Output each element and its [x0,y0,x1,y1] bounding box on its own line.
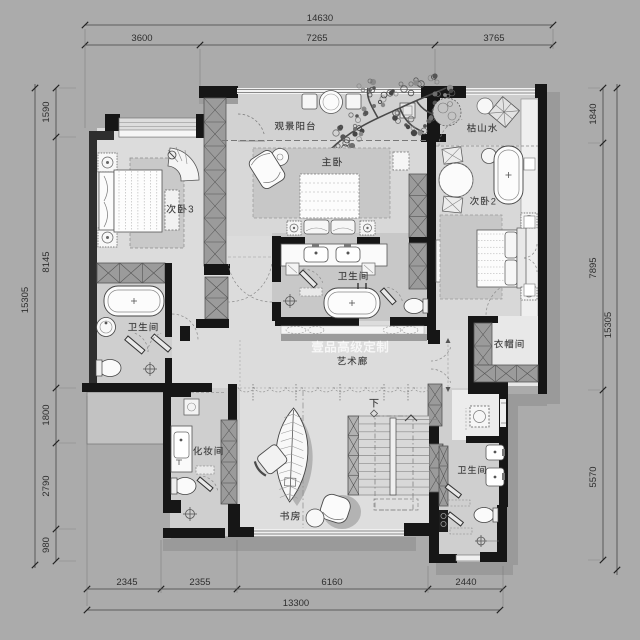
svg-text:3765: 3765 [483,33,504,44]
svg-text:7265: 7265 [306,33,327,44]
svg-text:1800: 1800 [41,404,52,425]
svg-text:8145: 8145 [41,251,52,272]
svg-text:5570: 5570 [588,466,599,487]
svg-text:2440: 2440 [455,577,476,588]
svg-text:3600: 3600 [131,33,152,44]
svg-text:1590: 1590 [41,101,52,122]
svg-text:980: 980 [41,537,52,553]
svg-text:6160: 6160 [321,577,342,588]
svg-text:15305: 15305 [603,312,614,338]
svg-text:2: 2 [491,196,496,206]
svg-text:1840: 1840 [588,103,599,124]
svg-text:14630: 14630 [307,13,333,24]
svg-text:7895: 7895 [588,257,599,278]
svg-text:15305: 15305 [20,287,31,313]
svg-text:2355: 2355 [189,577,210,588]
svg-text:2345: 2345 [116,577,137,588]
svg-text:3: 3 [188,205,194,216]
svg-text:13300: 13300 [283,598,309,609]
svg-text:2790: 2790 [41,475,52,496]
